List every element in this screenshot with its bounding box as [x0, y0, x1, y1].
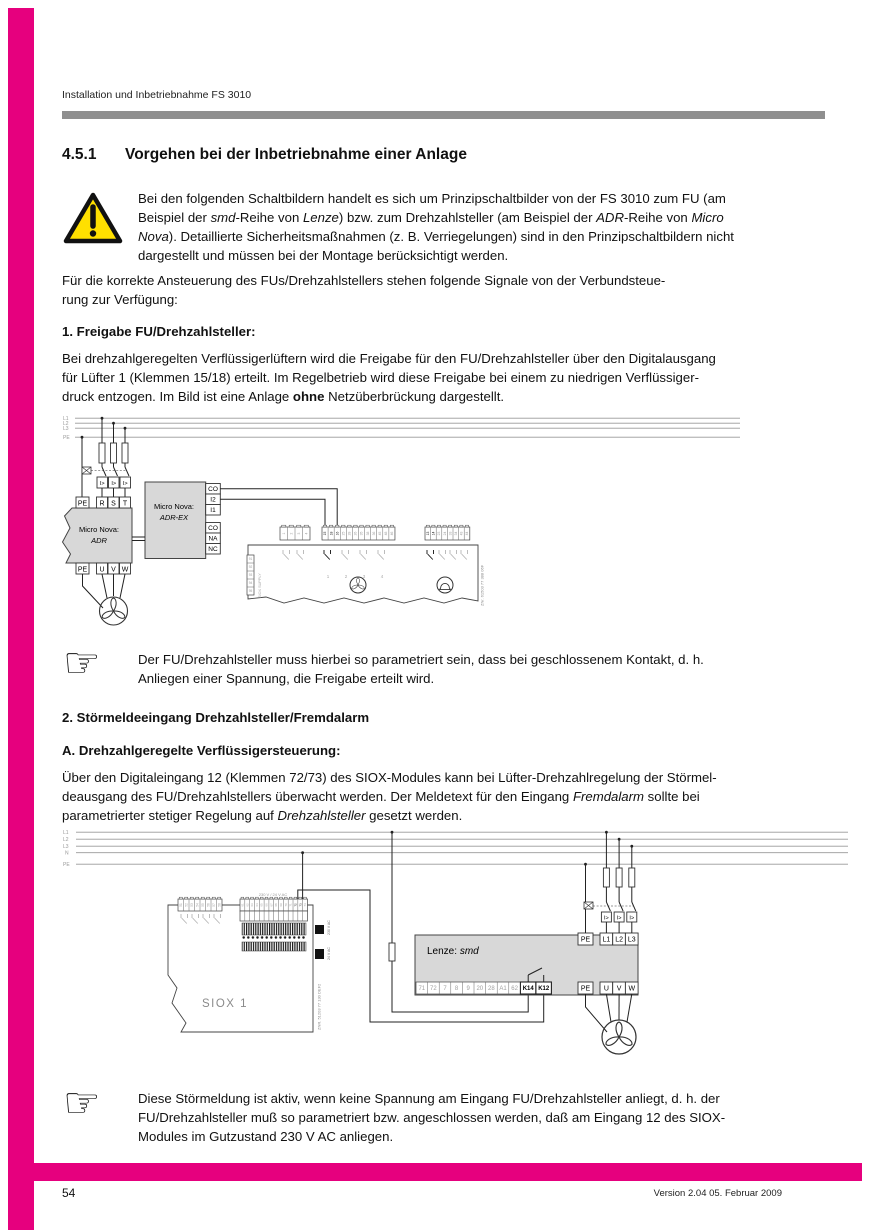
terminal-label: 18 [329, 532, 333, 536]
motor-breaker: I> I> I> [584, 902, 637, 933]
terminal-nub [275, 897, 278, 899]
terminal-label: 1 [282, 532, 286, 534]
terminal-nub [384, 525, 387, 527]
siox1-strip-right-row2 [240, 911, 307, 921]
fuse [389, 943, 395, 961]
terminal-label: 93 [249, 573, 253, 577]
siox-strip-a: 1234 [280, 525, 310, 540]
terminal-nub [299, 897, 302, 899]
terminal-nub [449, 525, 452, 527]
diagram-freigabe: L1 L2 L3 PE I> I> [62, 415, 742, 630]
terminal-label: 62 [511, 986, 518, 992]
motor-wires [586, 994, 632, 1032]
fan-wires [83, 574, 126, 608]
terminal-label: 48 [384, 532, 388, 536]
drawing-number: ZNr. 61503 77 388 06F [480, 564, 485, 606]
voltage-label: 230 V / 24 V AC [259, 892, 288, 897]
note-freigabe: Der FU/Drehzahlsteller muss hierbei so p… [138, 650, 848, 688]
terminal-label: 23 [437, 532, 441, 536]
siox1-strip-right: 6162636465666768697071727374 [240, 897, 307, 911]
terminal-nub [443, 525, 446, 527]
mains-rails: L1 L2 L3 PE [63, 416, 740, 441]
subheading-freigabe: 1. Freigabe FU/Drehzahlsteller: [62, 322, 255, 341]
svg-text:L2: L2 [615, 937, 623, 944]
terminal-label: 13 [426, 532, 430, 536]
svg-text:ADR-EX: ADR-EX [159, 513, 189, 522]
terminal-label: 57 [212, 903, 216, 907]
terminal-label: 64 [255, 903, 259, 907]
alarm-bell-symbol [437, 577, 453, 593]
terminal-nub [179, 897, 182, 899]
terminal-label: 70 [284, 903, 288, 907]
page-number: 54 [62, 1186, 75, 1200]
svg-text:CO: CO [208, 525, 218, 532]
terminal-nub [218, 897, 221, 899]
svg-text:1: 1 [327, 574, 330, 579]
intro-paragraph: Für die korrekte Ansteuerung des FUs/Dre… [62, 271, 842, 309]
terminal-label: 56 [206, 903, 210, 907]
jumper-comb-1 [242, 923, 306, 935]
siox-strip-b: 151816252826353836454846 [322, 525, 395, 540]
terminal-nub [196, 897, 199, 899]
svg-text:U: U [604, 986, 609, 993]
fuse [99, 443, 128, 463]
terminal-label: 62 [245, 903, 249, 907]
terminal-nub [251, 897, 254, 899]
svg-text:V: V [111, 566, 116, 573]
terminal-label: 28 [488, 986, 495, 992]
svg-text:PE: PE [63, 862, 70, 868]
terminal-label: A1 [499, 986, 507, 992]
terminal-nub [185, 897, 188, 899]
siox1-label: SIOX 1 [202, 998, 248, 1010]
svg-text:CO: CO [208, 486, 218, 493]
terminal-nub [390, 525, 393, 527]
terminal-label: 72 [430, 986, 437, 992]
terminal-label: 63 [250, 903, 254, 907]
svg-text:W: W [122, 566, 129, 573]
terminal-nub [212, 897, 215, 899]
relay-contacts [283, 550, 468, 560]
svg-text:L2: L2 [63, 837, 69, 843]
adrex-label: Micro Nova: [154, 502, 194, 511]
terminal-nub [190, 897, 193, 899]
siox1-hooks [181, 914, 221, 924]
section-number: 4.5.1 [62, 146, 125, 164]
terminal-nub [366, 525, 369, 527]
terminal-nub [282, 525, 286, 527]
svg-text:T: T [123, 500, 128, 507]
subheading-stoermeldung: 2. Störmeldeeingang Drehzahlsteller/Frem… [62, 708, 369, 727]
svg-text:4: 4 [381, 574, 384, 579]
adr-top-terminals: PE R S T [76, 497, 131, 508]
terminal-nub [348, 525, 351, 527]
terminal-nub [454, 525, 457, 527]
terminal-label: 26 [354, 532, 358, 536]
lenze-relay-terminals: K14 K12 [520, 982, 551, 994]
terminal-nub [323, 525, 326, 527]
svg-text:3: 3 [363, 574, 366, 579]
terminal-label: 91 [249, 557, 253, 561]
svg-text:L3: L3 [63, 426, 69, 432]
version-info: Version 2.04 05. Februar 2009 [592, 1188, 782, 1199]
terminal-label: 43 [460, 532, 464, 536]
svg-text:N: N [65, 851, 69, 857]
block-24v [315, 949, 324, 959]
terminal-label: 16 [335, 532, 339, 536]
svg-text:NA: NA [208, 536, 218, 543]
terminal-label: 28 [348, 532, 352, 536]
terminal-nub [201, 897, 204, 899]
adrex-terminals: CO I2 I1 CO NA NC [206, 484, 221, 555]
block-24v-label: 24 V AC [327, 947, 331, 960]
drawing-number: ZNR. 51203 77 130 DEF2 [317, 983, 322, 1030]
svg-text:I>: I> [604, 915, 609, 921]
svg-text:I>: I> [617, 915, 622, 921]
svg-text:L1: L1 [63, 830, 69, 836]
terminal-label: 71 [418, 986, 425, 992]
svg-text:I>: I> [629, 915, 634, 921]
svg-text:PE: PE [78, 566, 88, 573]
section-title-text: Vorgehen bei der Inbetriebnahme einer An… [125, 146, 467, 163]
svg-text:L3: L3 [63, 844, 69, 850]
motor-symbol [602, 1020, 636, 1054]
terminal-label: 66 [265, 903, 269, 907]
terminal-nub [460, 525, 463, 527]
subheading-verfluessiger: A. Drehzahlgeregelte Verflüssigersteueru… [62, 741, 340, 760]
jumper-dots [242, 936, 306, 941]
terminal-label: 35 [360, 532, 364, 536]
siox-strip-c: 1314232433344344 [425, 525, 470, 540]
terminal-nub [297, 525, 301, 527]
svg-text:S: S [111, 500, 116, 507]
terminal-label: 71 [289, 903, 293, 907]
terminal-label: 24 [443, 532, 447, 536]
pointing-hand-icon: ☞ [63, 642, 101, 684]
terminal-nub [354, 525, 357, 527]
terminal-label: 58 [217, 903, 221, 907]
svg-text:K14: K14 [523, 986, 535, 992]
svg-text:2: 2 [345, 574, 348, 579]
terminal-nub [284, 897, 287, 899]
svg-text:L1: L1 [603, 937, 611, 944]
terminal-label: 15 [323, 532, 327, 536]
terminal-label: 4 [304, 532, 308, 534]
adr-adrex-link [132, 537, 145, 541]
stoermeldung-paragraph: Über den Digitaleingang 12 (Klemmen 72/7… [62, 768, 852, 825]
svg-text:K12: K12 [538, 986, 550, 992]
block-230v-label: 230 V AC [327, 920, 331, 935]
terminal-label: 72 [293, 903, 297, 907]
terminal-nub [246, 897, 249, 899]
terminal-nub [270, 897, 273, 899]
section-title: 4.5.1Vorgehen bei der Inbetriebnahme ein… [62, 146, 467, 164]
terminal-label: 94 [249, 581, 253, 585]
terminal-nub [304, 525, 308, 527]
svg-text:I2: I2 [210, 497, 216, 504]
terminal-label: 2 [289, 532, 293, 534]
terminal-nub [241, 897, 244, 899]
terminal-nub [256, 897, 259, 899]
fuse-row [603, 868, 634, 887]
header-rule [62, 111, 825, 119]
lenze-label: Lenze: smd [427, 946, 479, 957]
svg-text:W: W [628, 986, 635, 993]
freigabe-paragraph: Bei drehzahlgeregelten Verflüssigerlüfte… [62, 349, 852, 406]
terminal-label: 92 [249, 565, 253, 569]
terminal-label: 46 [390, 532, 394, 536]
terminal-nub [437, 525, 440, 527]
terminal-nub [465, 525, 468, 527]
terminal-nub [360, 525, 363, 527]
svg-text:U: U [99, 566, 104, 573]
svg-text:V: V [617, 986, 622, 993]
svg-text:PE: PE [581, 986, 591, 993]
terminal-label: 67 [269, 903, 273, 907]
terminal-nub [294, 897, 297, 899]
adr-label: Micro Nova: [79, 525, 119, 534]
fan-symbol [100, 597, 128, 625]
svg-text:PE: PE [63, 435, 70, 441]
terminal-nub [304, 897, 307, 899]
terminal-nub [342, 525, 345, 527]
terminal-label: 51 [179, 903, 183, 907]
block-230v [315, 925, 324, 934]
left-accent-stripe [8, 8, 34, 1230]
control-wires [220, 489, 337, 527]
pointing-hand-icon: ☞ [63, 1082, 101, 1124]
svg-text:NC: NC [208, 546, 218, 553]
manual-page: Installation und Inbetriebnahme FS 3010 … [0, 0, 870, 1230]
terminal-nub [289, 897, 292, 899]
terminal-nub [378, 525, 381, 527]
terminal-label: 61 [240, 903, 244, 907]
running-header: Installation und Inbetriebnahme FS 3010 [62, 89, 251, 101]
diagram-stoermeldung: L1 L2 L3 N PE SIOX 1 5152535455565758 23… [62, 825, 852, 1065]
terminal-label: 54 [195, 903, 199, 907]
svg-text:PE: PE [581, 937, 591, 944]
svg-text:ADR: ADR [90, 536, 107, 545]
mains-rails: L1 L2 L3 N PE [63, 830, 848, 868]
terminal-nub [335, 525, 338, 527]
motor-breaker: I> I> I> [82, 467, 131, 497]
warning-icon [63, 191, 123, 245]
svg-text:I>: I> [123, 481, 128, 487]
terminal-label: 3 [297, 532, 301, 534]
terminal-label: 55 [201, 903, 205, 907]
terminal-nub [280, 897, 283, 899]
warning-text: Bei den folgenden Schaltbildern handelt … [138, 189, 848, 265]
siox-supply-label: SIOX SUPPLY [258, 573, 262, 598]
adr-bottom-terminals: PE U V W [76, 563, 131, 574]
svg-text:I>: I> [111, 481, 116, 487]
terminal-label: 36 [372, 532, 376, 536]
terminal-label: 45 [378, 532, 382, 536]
terminal-label: 38 [366, 532, 370, 536]
terminal-nub [260, 897, 263, 899]
svg-text:PE: PE [78, 500, 88, 507]
terminal-label: 34 [454, 532, 458, 536]
terminal-label: 33 [448, 532, 452, 536]
note-stoermeldung: Diese Störmeldung ist aktiv, wenn keine … [138, 1089, 848, 1146]
terminal-label: 74 [303, 903, 307, 907]
lenze-control-terminals: 71727892028A162 [416, 982, 520, 994]
svg-text:I>: I> [100, 481, 105, 487]
svg-text:L3: L3 [628, 937, 636, 944]
terminal-label: 20 [476, 986, 483, 992]
fan-group-numbers: 1 2 3 4 [327, 574, 384, 579]
terminal-label: 95 [249, 589, 253, 593]
terminal-label: 53 [190, 903, 194, 907]
terminal-nub [329, 525, 332, 527]
terminal-label: 69 [279, 903, 283, 907]
terminal-nub [289, 525, 293, 527]
terminal-label: 73 [298, 903, 302, 907]
footer-accent-bar [8, 1163, 862, 1181]
siox-supply-terminals: 9192939495 [247, 555, 254, 595]
siox1-strip-left: 5152535455565758 [178, 897, 222, 911]
terminal-nub [265, 897, 268, 899]
terminal-label: 52 [184, 903, 188, 907]
terminal-label: 44 [465, 532, 469, 536]
terminal-label: 65 [260, 903, 264, 907]
terminal-label: 25 [341, 532, 345, 536]
terminal-nub [207, 897, 210, 899]
svg-text:R: R [99, 500, 104, 507]
jumper-comb-2 [242, 942, 306, 951]
terminal-label: 68 [274, 903, 278, 907]
svg-text:I1: I1 [210, 507, 216, 514]
terminal-label: 14 [432, 532, 436, 536]
terminal-nub [372, 525, 375, 527]
fan-mini-symbol [350, 577, 366, 593]
terminal-nub [426, 525, 429, 527]
terminal-nub [432, 525, 435, 527]
